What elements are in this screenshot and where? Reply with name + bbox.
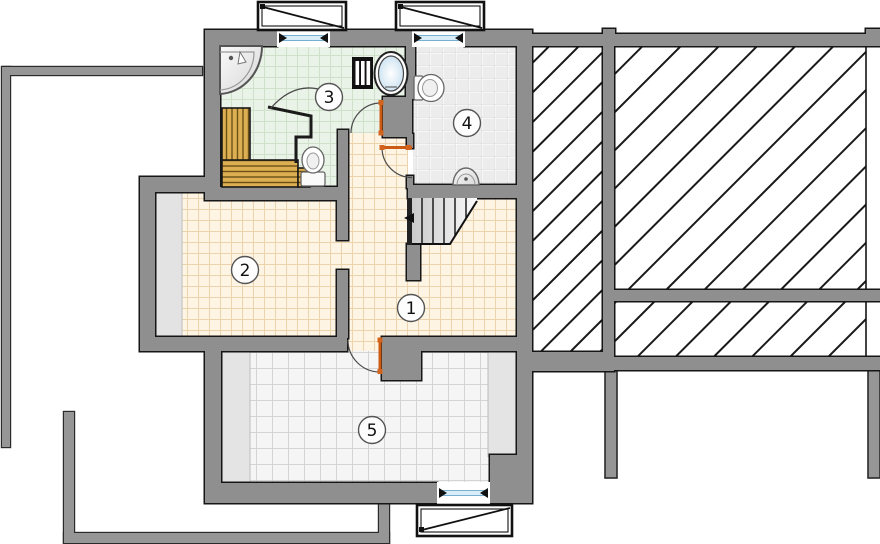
round-tub: [375, 52, 408, 95]
terrace-hatch-areas: [532, 46, 866, 357]
terrace-strip: [532, 46, 603, 352]
floor-plan-drawing: 1 2 3 4 5: [0, 0, 880, 544]
room-badge-2: 2: [232, 257, 259, 284]
room-label-1: 1: [406, 299, 417, 319]
radiator-icon: [352, 57, 373, 89]
toilet: [301, 147, 325, 186]
room-label-4: 4: [462, 114, 473, 134]
room-label-3: 3: [324, 88, 335, 108]
window-top-left: [277, 29, 330, 47]
room-badge-1: 1: [398, 295, 425, 322]
room-badge-3: 3: [316, 84, 343, 111]
room-label-2: 2: [240, 261, 251, 281]
window-bottom: [437, 482, 490, 504]
roof-window-icon: [396, 2, 484, 30]
roof-window-icon: [417, 505, 512, 536]
terrace-posts: [605, 368, 880, 478]
terrace-upper: [614, 46, 866, 290]
toilet: [414, 75, 444, 102]
window-top-right: [412, 29, 465, 47]
room-2-slope-strip: [155, 192, 182, 337]
room-label-5: 5: [367, 421, 378, 441]
room-badge-5: 5: [359, 417, 386, 444]
roof-window-icon: [258, 2, 346, 30]
room-badge-4: 4: [454, 110, 481, 137]
floor-plan-canvas: 1 2 3 4 5: [0, 0, 880, 544]
terrace-lower: [614, 301, 866, 357]
